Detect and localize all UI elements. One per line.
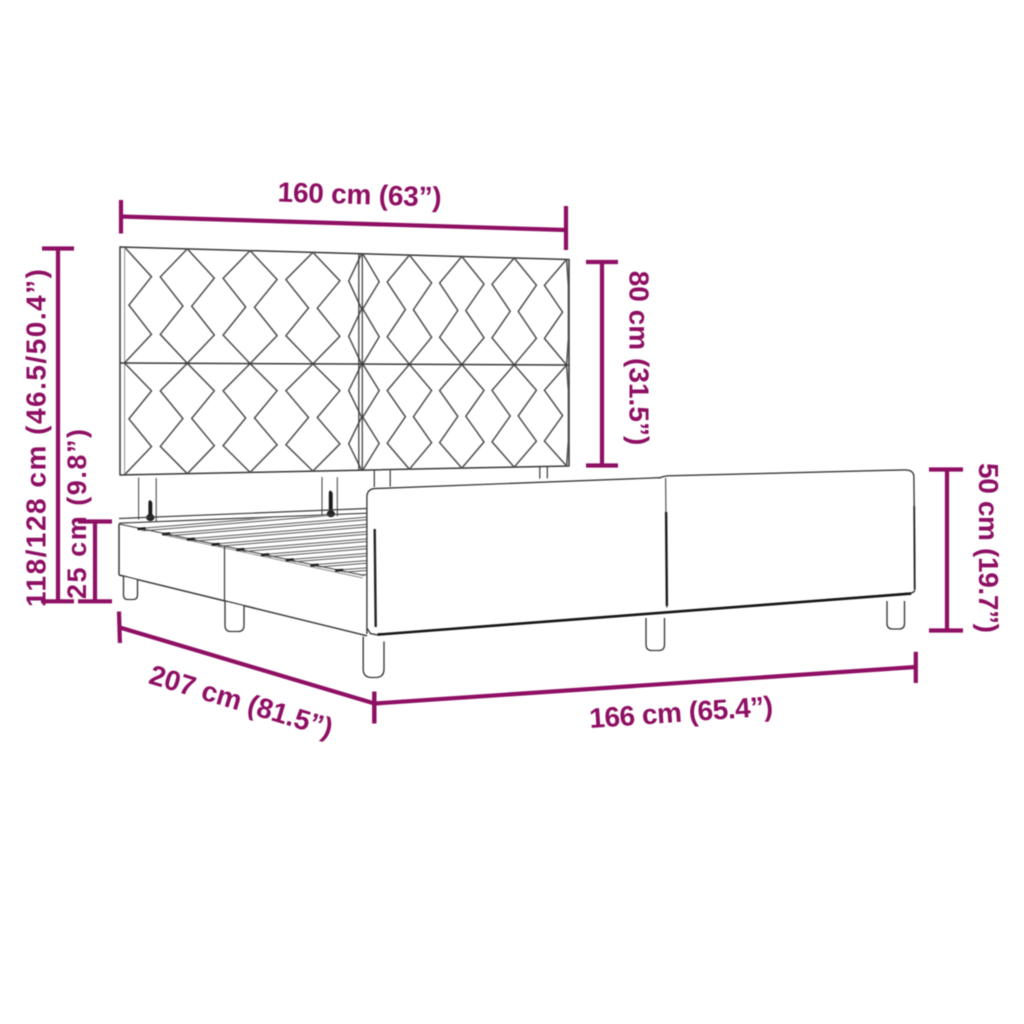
svg-text:207 cm (81.5”): 207 cm (81.5”): [146, 659, 337, 744]
svg-text:118/128 cm (46.5/50.4”): 118/128 cm (46.5/50.4”): [21, 269, 52, 607]
svg-text:160 cm (63”): 160 cm (63”): [277, 177, 442, 213]
svg-text:50 cm (19.7”): 50 cm (19.7”): [973, 463, 1004, 633]
svg-text:25 cm (9.8”): 25 cm (9.8”): [62, 429, 92, 599]
svg-text:166 cm (65.4”): 166 cm (65.4”): [588, 691, 774, 734]
svg-text:80 cm (31.5”): 80 cm (31.5”): [624, 271, 655, 446]
